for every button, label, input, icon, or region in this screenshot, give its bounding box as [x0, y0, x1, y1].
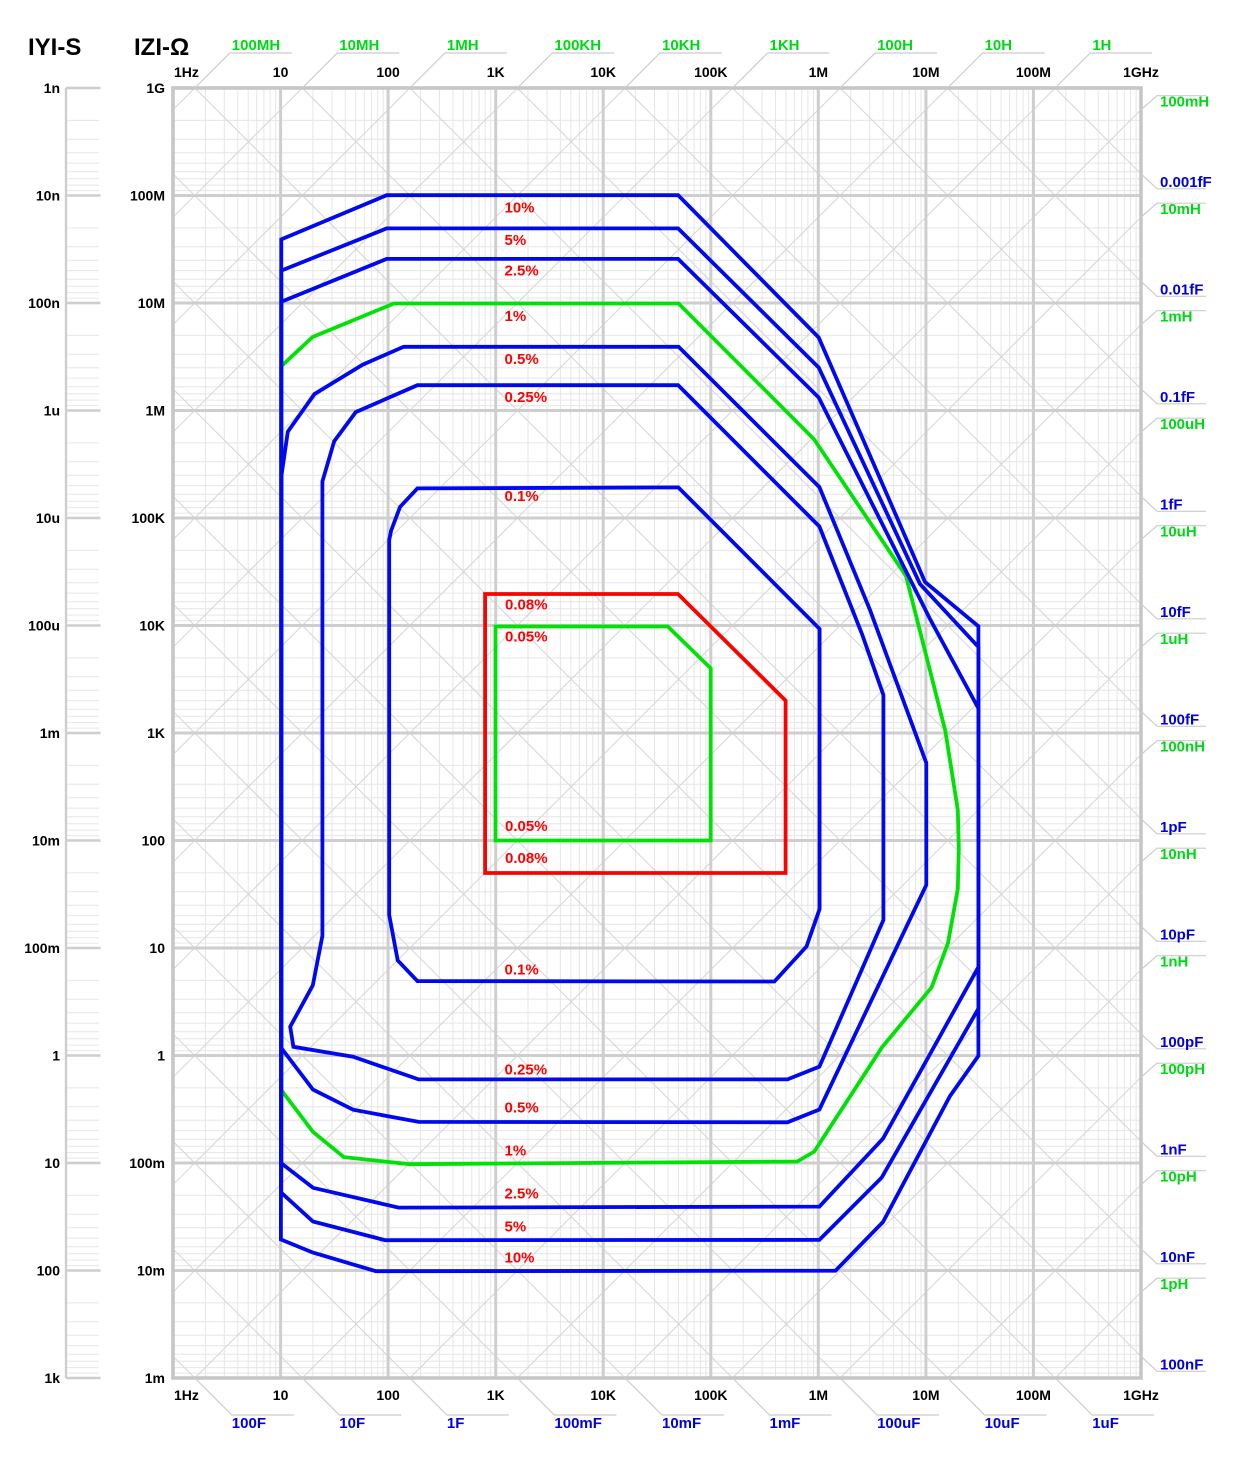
svg-text:10%: 10% [505, 1249, 535, 1266]
svg-text:10H: 10H [985, 37, 1013, 54]
svg-text:1M: 1M [146, 403, 165, 419]
svg-text:100n: 100n [28, 295, 60, 311]
svg-text:10: 10 [44, 1155, 60, 1171]
svg-text:10: 10 [273, 1387, 289, 1403]
svg-text:10F: 10F [339, 1415, 365, 1432]
svg-text:10pF: 10pF [1160, 926, 1195, 943]
svg-text:1GHz: 1GHz [1123, 1387, 1159, 1403]
svg-text:10fF: 10fF [1160, 604, 1191, 621]
svg-text:0.1%: 0.1% [505, 488, 539, 505]
svg-text:100pF: 100pF [1160, 1034, 1203, 1051]
svg-text:100M: 100M [1016, 1387, 1051, 1403]
svg-text:100pH: 100pH [1160, 1061, 1205, 1078]
svg-text:1: 1 [157, 1048, 165, 1064]
svg-text:100m: 100m [24, 940, 60, 956]
svg-text:2.5%: 2.5% [505, 262, 539, 279]
svg-text:1H: 1H [1092, 37, 1111, 54]
svg-text:1Hz: 1Hz [174, 1387, 199, 1403]
svg-text:100M: 100M [1016, 64, 1051, 80]
svg-text:10mH: 10mH [1160, 201, 1201, 218]
svg-text:10pH: 10pH [1160, 1169, 1197, 1186]
svg-text:1GHz: 1GHz [1123, 64, 1159, 80]
svg-text:10MH: 10MH [339, 37, 379, 54]
svg-text:1M: 1M [809, 64, 828, 80]
svg-text:10m: 10m [32, 833, 60, 849]
svg-text:100m: 100m [129, 1155, 165, 1171]
svg-text:0.08%: 0.08% [505, 596, 548, 613]
svg-text:1fF: 1fF [1160, 496, 1183, 513]
svg-text:1K: 1K [487, 64, 505, 80]
svg-text:100mF: 100mF [554, 1415, 602, 1432]
svg-text:100M: 100M [130, 188, 165, 204]
svg-text:10nF: 10nF [1160, 1249, 1195, 1266]
svg-text:1u: 1u [44, 403, 60, 419]
svg-text:100K: 100K [132, 510, 165, 526]
svg-text:0.5%: 0.5% [505, 351, 539, 368]
svg-text:1M: 1M [809, 1387, 828, 1403]
svg-text:0.25%: 0.25% [505, 389, 548, 406]
svg-text:1uH: 1uH [1160, 631, 1188, 648]
svg-text:10n: 10n [36, 188, 60, 204]
svg-text:100u: 100u [28, 618, 60, 634]
svg-text:100F: 100F [232, 1415, 266, 1432]
svg-text:IYI-S: IYI-S [28, 34, 81, 61]
svg-text:100mH: 100mH [1160, 94, 1209, 111]
svg-text:10K: 10K [139, 618, 165, 634]
svg-text:1m: 1m [145, 1370, 165, 1386]
svg-text:1K: 1K [147, 725, 165, 741]
svg-text:5%: 5% [505, 232, 527, 249]
svg-text:1%: 1% [505, 1142, 527, 1159]
svg-text:10: 10 [273, 64, 289, 80]
svg-text:0.25%: 0.25% [505, 1061, 548, 1078]
svg-text:100: 100 [376, 64, 400, 80]
svg-text:10K: 10K [590, 1387, 616, 1403]
svg-text:0.05%: 0.05% [505, 628, 548, 645]
svg-text:10M: 10M [138, 295, 165, 311]
svg-text:10u: 10u [36, 510, 60, 526]
svg-text:100nF: 100nF [1160, 1356, 1203, 1373]
svg-text:1pF: 1pF [1160, 819, 1187, 836]
svg-text:100MH: 100MH [232, 37, 280, 54]
svg-text:1: 1 [52, 1048, 60, 1064]
svg-text:100: 100 [376, 1387, 400, 1403]
svg-text:100fF: 100fF [1160, 711, 1199, 728]
svg-text:1nH: 1nH [1160, 954, 1188, 971]
svg-text:10K: 10K [590, 64, 616, 80]
svg-text:100KH: 100KH [554, 37, 601, 54]
svg-text:10M: 10M [912, 1387, 939, 1403]
svg-text:2.5%: 2.5% [505, 1185, 539, 1202]
svg-text:10mF: 10mF [662, 1415, 701, 1432]
svg-text:100K: 100K [694, 1387, 727, 1403]
svg-text:1F: 1F [447, 1415, 465, 1432]
svg-text:100K: 100K [694, 64, 727, 80]
svg-text:10uF: 10uF [985, 1415, 1020, 1432]
svg-text:1m: 1m [40, 725, 60, 741]
svg-text:1KH: 1KH [770, 37, 800, 54]
svg-text:100nH: 100nH [1160, 739, 1205, 756]
svg-text:1Hz: 1Hz [174, 64, 199, 80]
svg-text:IZI-Ω: IZI-Ω [134, 34, 189, 61]
svg-text:1mH: 1mH [1160, 309, 1193, 326]
svg-text:1G: 1G [146, 80, 165, 96]
svg-text:0.5%: 0.5% [505, 1099, 539, 1116]
svg-text:0.001fF: 0.001fF [1160, 174, 1212, 191]
svg-text:1%: 1% [505, 308, 527, 325]
svg-text:10M: 10M [912, 64, 939, 80]
svg-text:100uH: 100uH [1160, 416, 1205, 433]
svg-text:10uH: 10uH [1160, 524, 1197, 541]
svg-text:10: 10 [149, 940, 165, 956]
svg-text:100uF: 100uF [877, 1415, 920, 1432]
svg-text:10%: 10% [505, 200, 535, 217]
svg-text:0.05%: 0.05% [505, 818, 548, 835]
svg-text:1MH: 1MH [447, 37, 479, 54]
svg-text:1k: 1k [44, 1370, 60, 1386]
svg-text:0.1fF: 0.1fF [1160, 389, 1195, 406]
svg-text:10nH: 10nH [1160, 846, 1197, 863]
svg-text:10KH: 10KH [662, 37, 700, 54]
svg-text:0.01fF: 0.01fF [1160, 281, 1203, 298]
svg-text:100: 100 [37, 1263, 61, 1279]
svg-text:100: 100 [142, 833, 166, 849]
svg-text:1n: 1n [44, 80, 60, 96]
svg-text:100H: 100H [877, 37, 913, 54]
svg-text:1uF: 1uF [1092, 1415, 1119, 1432]
svg-text:5%: 5% [505, 1218, 527, 1235]
svg-text:0.08%: 0.08% [505, 850, 548, 867]
svg-text:1K: 1K [487, 1387, 505, 1403]
svg-text:1mF: 1mF [770, 1415, 801, 1432]
svg-text:1pH: 1pH [1160, 1276, 1188, 1293]
svg-text:1nF: 1nF [1160, 1141, 1187, 1158]
svg-text:0.1%: 0.1% [505, 961, 539, 978]
svg-text:10m: 10m [137, 1263, 165, 1279]
